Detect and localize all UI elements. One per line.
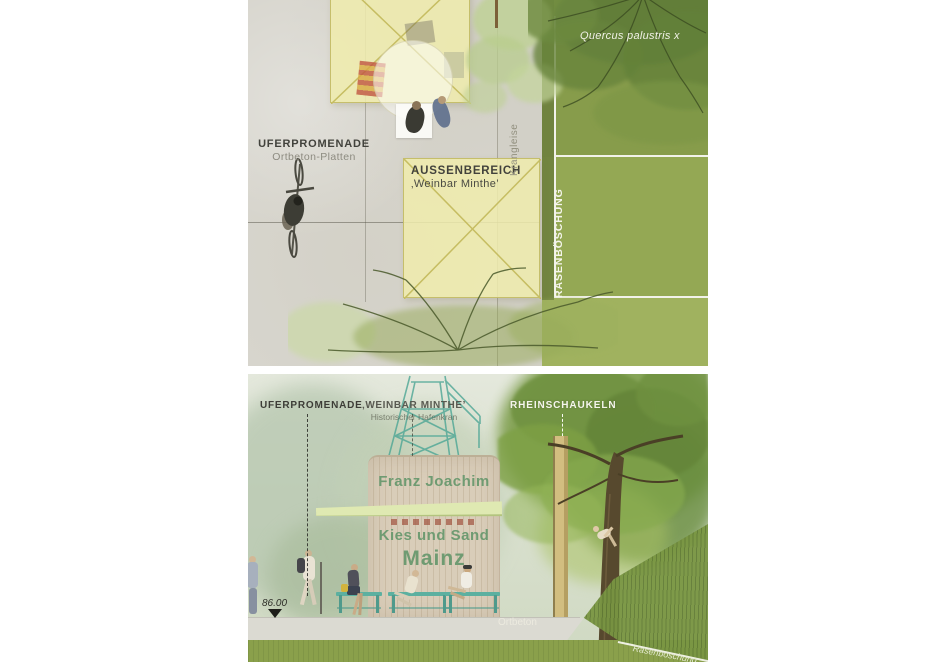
kiosk-sign-line2: Kies und Sand: [368, 527, 500, 544]
weinbar-label-group: ‚WEINBAR MINTHE’ Historischer Hafenkran: [354, 400, 474, 422]
seated-person-blue-head: [438, 96, 446, 104]
bench-3-leg: [494, 595, 497, 613]
seated-person-dark-head: [412, 101, 421, 110]
kiosk-sign-line1: Franz Joachim: [368, 473, 500, 490]
outdoor-area-sub-label: ‚Weinbar Minthe’: [411, 178, 521, 190]
promenade-leader-line: [307, 414, 308, 596]
walking-person: [292, 550, 328, 620]
crane-tracks-label: Krangleise: [509, 112, 520, 176]
bare-tree-bottom: [288, 262, 618, 366]
ground-material-label: Ortbeton: [498, 617, 537, 628]
edge-person-body: [248, 562, 258, 588]
promenade-label: UFERPROMENADE: [256, 138, 372, 150]
lawn-slope-label: RASENBÖSCHUNG: [553, 212, 565, 298]
tree-species-label: Quercus palustris x: [580, 30, 680, 42]
elevation-label: 86.00: [262, 598, 287, 609]
promenade-material-label: Ortbeton-Platten: [256, 151, 372, 163]
seated-person-2-torso: [404, 575, 419, 594]
promenade-label-group: UFERPROMENADE Ortbeton-Platten: [256, 138, 372, 163]
walking-person-leg: [307, 579, 316, 605]
seated-person-3: [448, 566, 488, 620]
oak-canopy: [528, 0, 708, 170]
swings-label: RHEINSCHAUKELN: [510, 400, 616, 411]
edge-person: [248, 556, 261, 618]
walking-stick: [320, 562, 322, 614]
seated-person-3-torso: [461, 572, 472, 588]
seated-person-1-leg: [358, 593, 363, 615]
edge-person-legs: [249, 588, 257, 614]
seated-person-1: [341, 564, 371, 619]
kiosk-partial-lettering: [391, 519, 477, 525]
seated-person-1-bag: [341, 584, 348, 592]
outdoor-area-label: AUSSENBEREICH: [411, 165, 521, 177]
cyclist-figure: [262, 158, 332, 263]
bench-2-leg: [443, 595, 446, 613]
swinging-person: [590, 524, 620, 564]
weinbar-sub-label: Historischer Hafenkran: [354, 412, 474, 422]
feathery-tree-trunk: [495, 0, 498, 28]
elevation-marker: [268, 609, 282, 618]
outdoor-area-label-group: AUSSENBEREICH ‚Weinbar Minthe’: [411, 165, 521, 190]
seated-person-3-hair: [463, 565, 472, 569]
site-plan-panel: UFERPROMENADE Ortbeton-Platten AUSSENBER…: [248, 0, 708, 366]
bench-1-leg: [376, 595, 379, 613]
weinbar-label: ‚WEINBAR MINTHE’: [354, 400, 474, 411]
section-promenade-label: UFERPROMENADE: [260, 400, 363, 411]
walking-person-backpack: [297, 558, 305, 573]
section-panel: Franz Joachim Kies und Sand Mainz: [248, 374, 708, 662]
